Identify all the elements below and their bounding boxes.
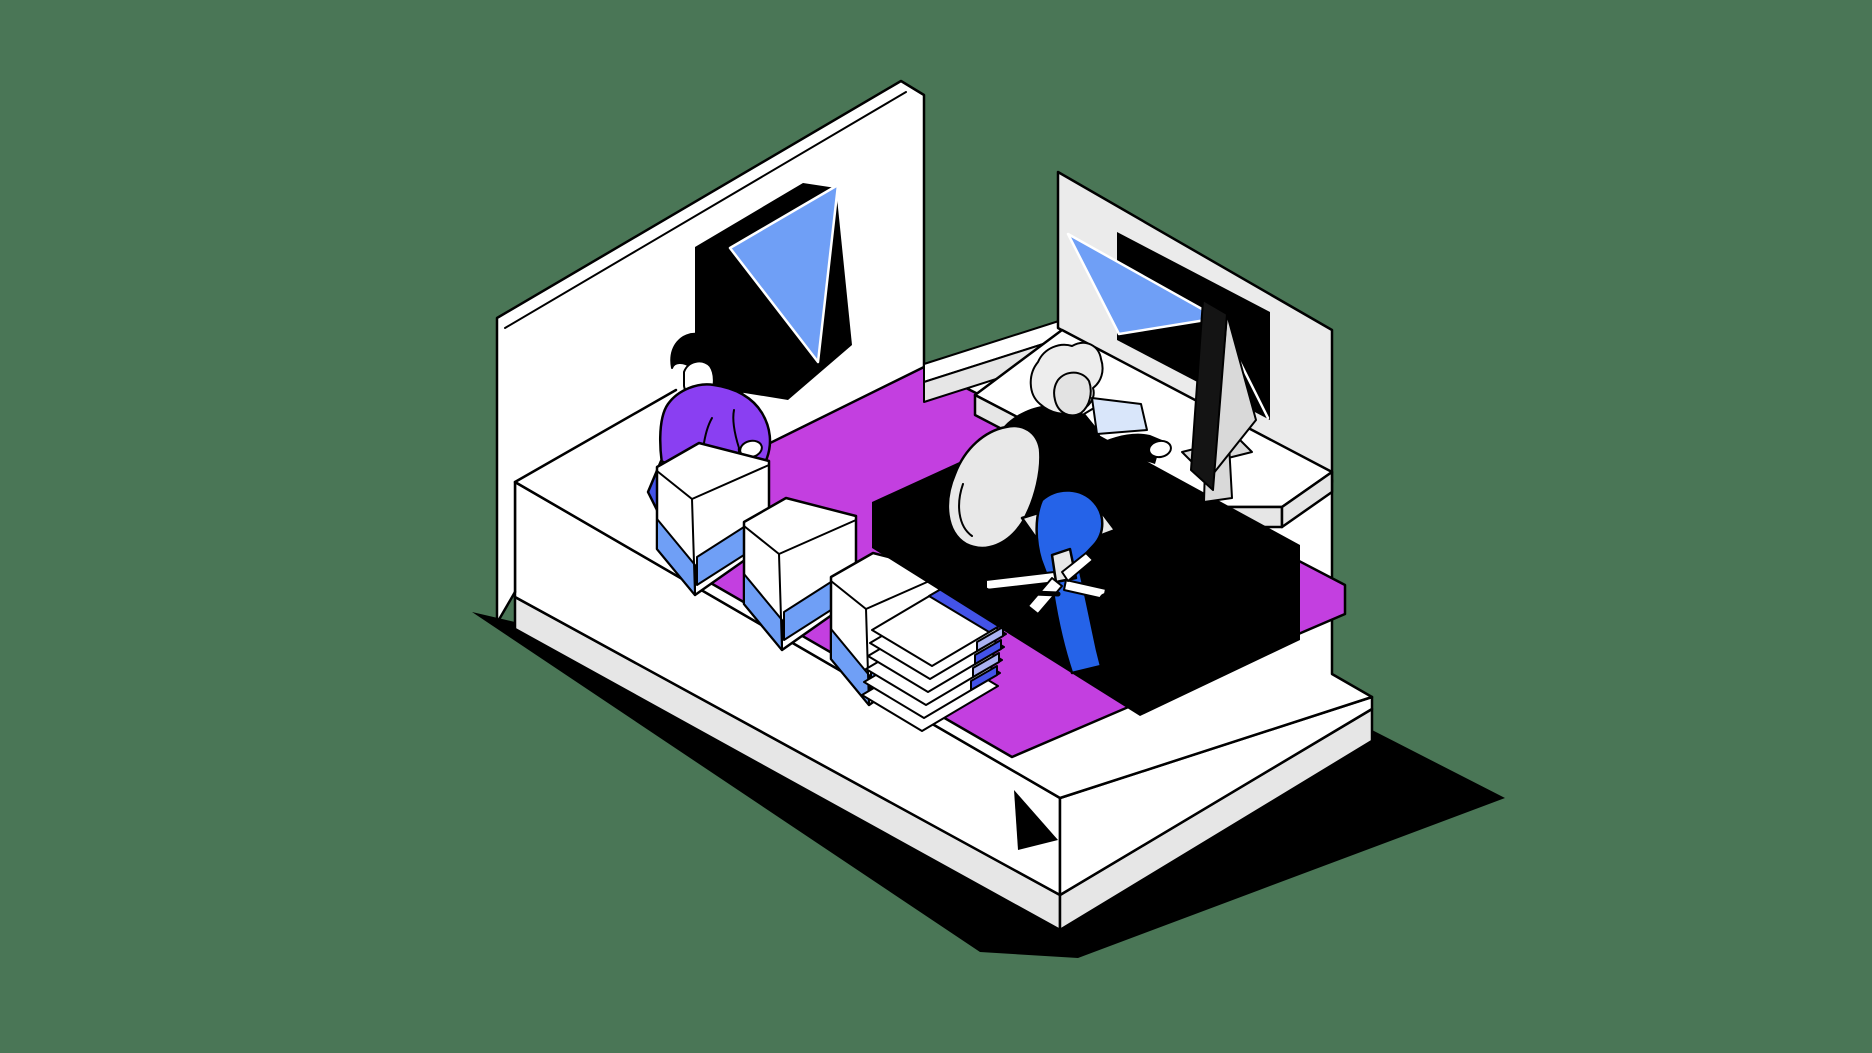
- held-paper: [1092, 398, 1147, 434]
- illustration-canvas: [0, 0, 1872, 1053]
- office-illustration: [0, 0, 1872, 1053]
- seated-face: [1054, 373, 1091, 416]
- chair-axle: [986, 591, 1058, 594]
- chair-wheel: [1099, 593, 1113, 607]
- chair-wheel: [1027, 613, 1041, 627]
- chair-wheel: [977, 587, 991, 601]
